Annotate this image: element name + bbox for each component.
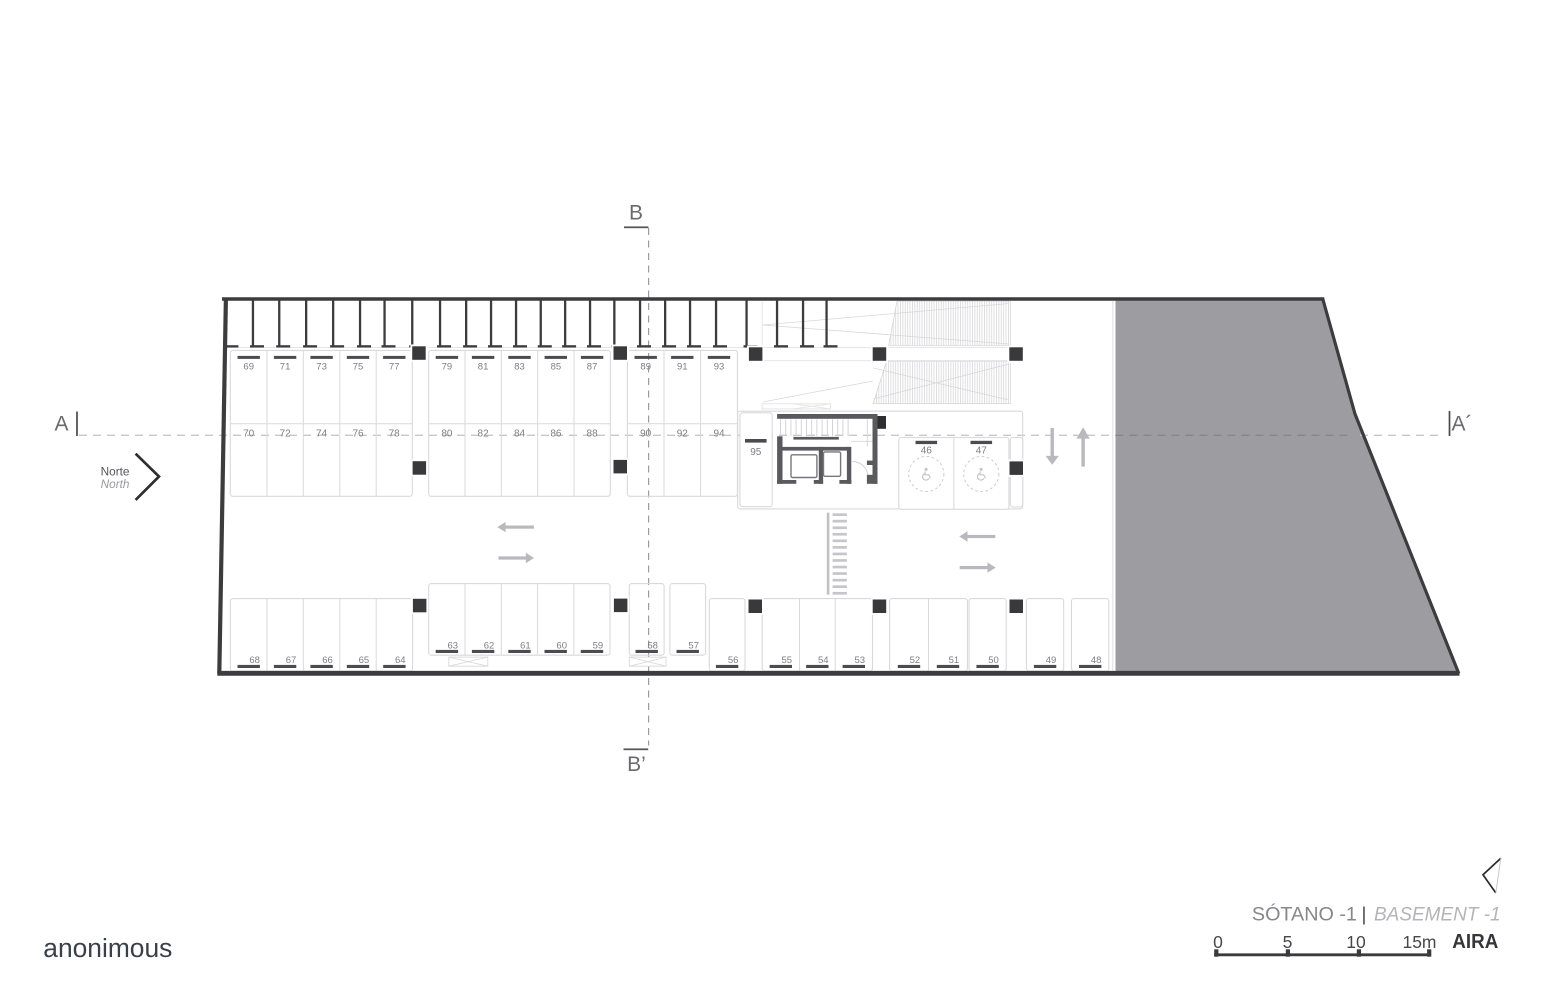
svg-text:67: 67 [286,655,297,666]
svg-text:64: 64 [395,655,406,666]
svg-text:86: 86 [550,429,562,440]
svg-text:50: 50 [988,655,999,666]
svg-text:5: 5 [1283,932,1293,952]
svg-text:92: 92 [677,429,689,440]
svg-text:74: 74 [316,429,328,440]
svg-text:66: 66 [322,655,333,666]
svg-text:71: 71 [280,361,291,372]
svg-text:83: 83 [514,361,525,372]
svg-text:15m: 15m [1402,932,1436,952]
svg-text:54: 54 [818,655,829,666]
svg-text:|: | [1362,905,1367,926]
svg-text:SÓTANO -1: SÓTANO -1 [1252,904,1357,926]
svg-text:anonimous: anonimous [43,935,172,963]
svg-text:53: 53 [855,655,866,666]
svg-text:85: 85 [551,361,562,372]
svg-text:AIRA: AIRA [1452,930,1498,953]
svg-text:0: 0 [1213,932,1223,952]
svg-text:69: 69 [243,361,254,372]
svg-text:North: North [101,477,130,491]
svg-text:A´: A´ [1452,413,1473,436]
svg-text:B’: B’ [627,753,646,776]
svg-text:76: 76 [352,429,364,440]
svg-text:46: 46 [921,446,933,457]
svg-text:70: 70 [243,429,255,440]
svg-text:75: 75 [353,361,364,372]
svg-text:B: B [629,202,643,225]
svg-text:89: 89 [640,361,651,372]
svg-text:90: 90 [640,429,652,440]
svg-text:73: 73 [316,361,327,372]
svg-text:93: 93 [714,361,725,372]
svg-text:87: 87 [587,361,598,372]
svg-text:68: 68 [249,655,260,666]
svg-text:81: 81 [478,361,489,372]
svg-text:10: 10 [1346,932,1366,952]
svg-text:78: 78 [389,429,401,440]
svg-text:56: 56 [728,655,739,666]
svg-text:82: 82 [478,429,490,440]
svg-text:84: 84 [514,429,526,440]
svg-text:51: 51 [949,655,960,666]
svg-text:49: 49 [1046,655,1057,666]
svg-text:95: 95 [750,447,762,458]
svg-text:52: 52 [910,655,921,666]
svg-text:Norte: Norte [101,464,130,478]
svg-text:A: A [54,413,68,436]
svg-text:77: 77 [389,361,400,372]
svg-text:55: 55 [782,655,793,666]
svg-text:47: 47 [976,446,988,457]
svg-text:48: 48 [1091,655,1102,666]
svg-text:91: 91 [677,361,688,372]
svg-text:88: 88 [587,429,599,440]
svg-text:BASEMENT -1: BASEMENT -1 [1374,905,1501,926]
svg-text:94: 94 [713,429,725,440]
svg-text:72: 72 [280,429,292,440]
svg-text:80: 80 [441,429,453,440]
svg-text:65: 65 [359,655,370,666]
svg-text:79: 79 [442,361,453,372]
